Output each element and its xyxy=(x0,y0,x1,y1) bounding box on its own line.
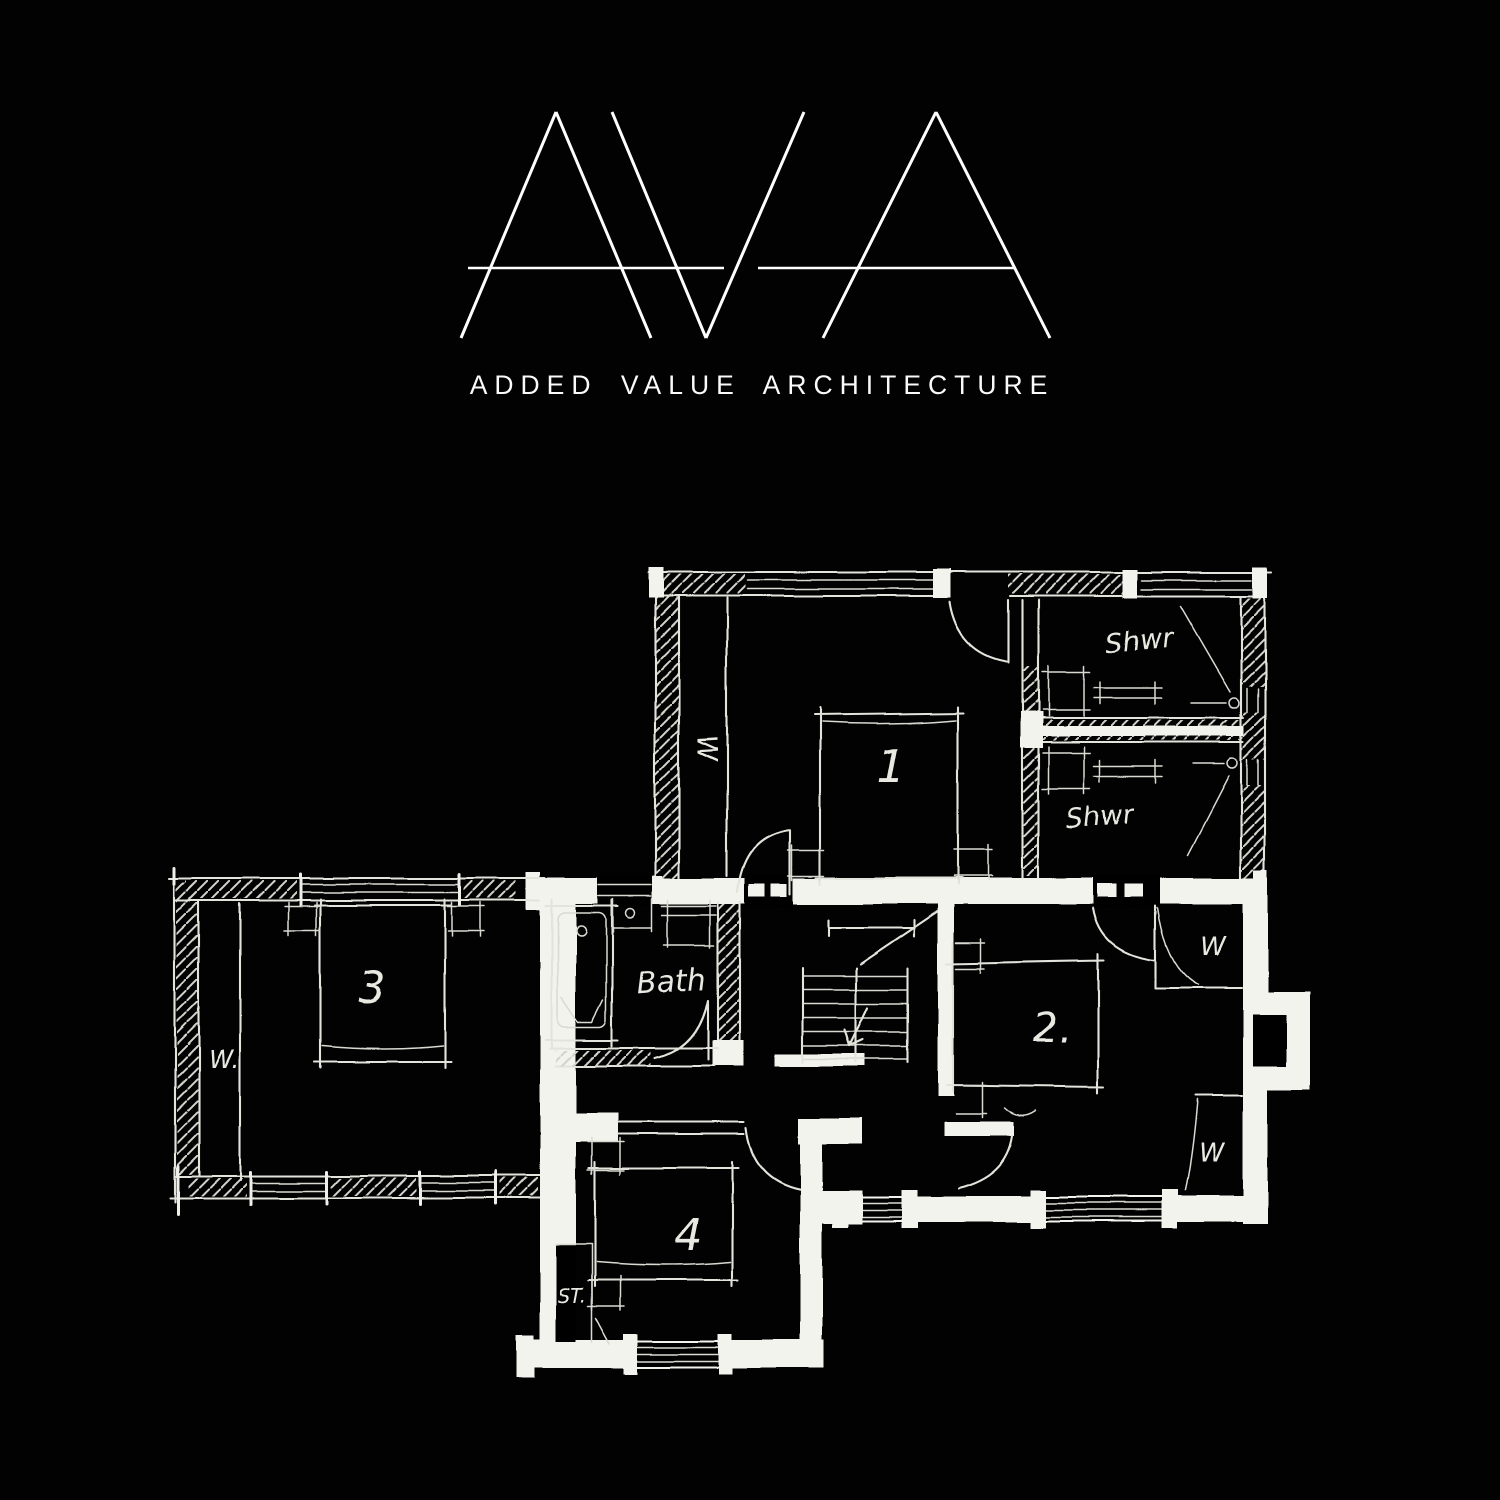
wall-hatch xyxy=(1242,598,1264,686)
dash xyxy=(749,884,765,897)
room-label: Shwr xyxy=(1064,799,1136,836)
wardrobe-label: W xyxy=(1198,1139,1225,1169)
landing-wall xyxy=(775,1054,865,1066)
room-number: 1 xyxy=(876,739,905,793)
storage-label: ST. xyxy=(558,1283,587,1307)
poster-canvas: AVA ADDED VALUE ARCHITECTURE xyxy=(0,0,1500,1500)
room-number: 4 xyxy=(674,1210,702,1261)
wall-post xyxy=(1020,712,1042,748)
wall-hatch xyxy=(330,1178,416,1196)
wall-hatch xyxy=(1242,786,1264,878)
wall-hatch xyxy=(1242,712,1264,760)
wall-post xyxy=(1030,1190,1046,1228)
wall-stub xyxy=(944,1122,1014,1136)
wall-post xyxy=(1253,567,1268,598)
wall-post xyxy=(1162,1190,1178,1228)
wardrobe-label: W. xyxy=(209,1045,240,1074)
east-wall xyxy=(800,1126,822,1342)
wall-corner-block xyxy=(540,1113,618,1142)
room-number: 2. xyxy=(1033,1006,1071,1052)
wall-marker xyxy=(1030,726,1244,736)
dash xyxy=(771,884,787,897)
wall-hatch xyxy=(1008,574,1125,594)
wall-hatch xyxy=(656,576,678,890)
wall-hatch xyxy=(719,904,739,1060)
wall-post xyxy=(1123,569,1138,598)
closet-label: W xyxy=(691,735,722,763)
background xyxy=(0,0,1500,1500)
dash xyxy=(1097,884,1116,897)
wall-hatch xyxy=(1023,666,1037,876)
room-label: Bath xyxy=(635,963,707,1003)
junction-block xyxy=(800,1190,862,1224)
wall-post xyxy=(902,1190,918,1228)
wall-hatch xyxy=(500,1178,538,1196)
wall-hatch xyxy=(186,880,296,898)
poster: AVA ADDED VALUE ARCHITECTURE xyxy=(0,0,1500,1500)
wall-post xyxy=(648,567,663,598)
wall-post xyxy=(933,569,951,598)
wall-marker xyxy=(1243,902,1268,996)
window-gap xyxy=(598,876,652,906)
wardrobe-label: W xyxy=(1200,932,1227,962)
dash xyxy=(1124,884,1143,897)
wall-marker xyxy=(938,902,954,1096)
wall-post xyxy=(624,1334,638,1374)
wall-hatch xyxy=(188,1178,246,1196)
chimney-flue xyxy=(1253,1014,1287,1066)
wall-post xyxy=(712,1040,744,1066)
wall-hatch xyxy=(556,1050,652,1066)
wall-post xyxy=(516,1336,534,1378)
wall-hatch xyxy=(464,880,516,898)
logo-tagline: ADDED VALUE ARCHITECTURE xyxy=(470,370,1055,400)
room-label: Shwr xyxy=(1104,623,1176,660)
wall-post xyxy=(718,1334,732,1374)
room-number: 3 xyxy=(358,963,386,1014)
wall-hatch xyxy=(177,882,198,1174)
